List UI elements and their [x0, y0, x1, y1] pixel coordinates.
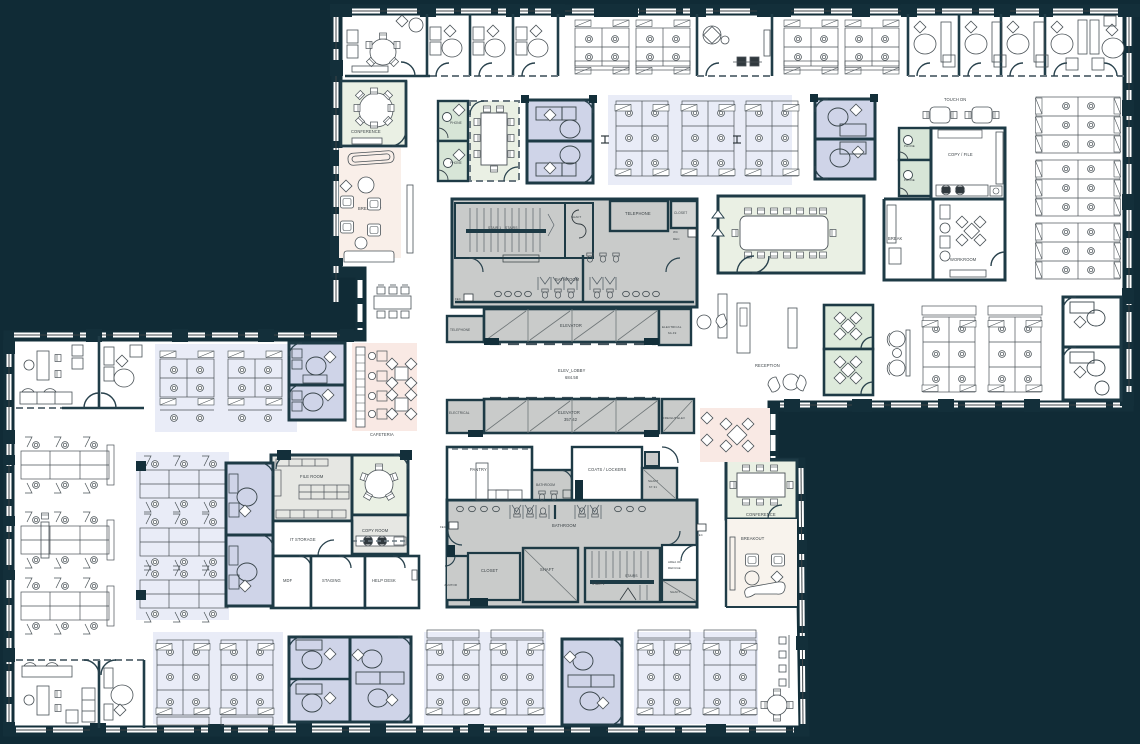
svg-text:ELEV_LOBBY: ELEV_LOBBY [558, 368, 586, 373]
svg-text:CONFERENCE: CONFERENCE [746, 512, 776, 517]
svg-text:HELP DESK: HELP DESK [372, 578, 396, 583]
svg-text:67.31: 67.31 [649, 485, 657, 489]
svg-text:BREAKOUT: BREAKOUT [741, 536, 765, 541]
svg-text:WORKROOM: WORKROOM [950, 257, 977, 262]
svg-text:CLOSET: CLOSET [674, 211, 687, 215]
svg-text:FEC: FEC [455, 297, 461, 301]
svg-text:CLOSET: CLOSET [481, 568, 498, 573]
svg-text:STAIRS: STAIRS [625, 574, 638, 578]
svg-text:BATHROOM: BATHROOM [536, 483, 555, 487]
svg-text:CONFERENCE: CONFERENCE [351, 129, 381, 134]
svg-text:IT STORAGE: IT STORAGE [290, 537, 316, 542]
svg-text:BATHROOM: BATHROOM [555, 277, 580, 282]
svg-text:PHONE: PHONE [450, 161, 462, 165]
svg-text:SHAFT: SHAFT [571, 215, 581, 219]
svg-text:REC: REC [673, 237, 680, 241]
svg-text:TOUCH DN: TOUCH DN [944, 97, 966, 102]
svg-text:FILE ROOM: FILE ROOM [300, 474, 324, 479]
svg-text:FEC: FEC [697, 533, 703, 537]
svg-text:SHAFT: SHAFT [670, 590, 680, 594]
svg-text:6A.49: 6A.49 [668, 331, 677, 335]
svg-text:BREAK: BREAK [888, 236, 903, 241]
svg-text:PANTRY: PANTRY [470, 467, 487, 472]
svg-text:COPY / FILE: COPY / FILE [948, 152, 973, 157]
svg-text:FREIGHT ELEV: FREIGHT ELEV [663, 416, 685, 420]
svg-text:RECEPTION: RECEPTION [755, 363, 780, 368]
svg-text:COPY ROOM: COPY ROOM [362, 528, 389, 533]
svg-text:MDF: MDF [283, 578, 293, 583]
svg-text:REFUGE: REFUGE [668, 566, 681, 570]
svg-text:ELECTRICAL: ELECTRICAL [662, 325, 682, 329]
svg-text:STAIR 1: STAIR 1 [488, 226, 501, 230]
svg-text:ELEVATOR: ELEVATOR [558, 410, 580, 415]
svg-text:ELEVATOR: ELEVATOR [560, 323, 582, 328]
svg-text:FEC: FEC [440, 525, 446, 529]
svg-text:PHONE: PHONE [450, 121, 462, 125]
svg-text:PHONE: PHONE [904, 178, 915, 182]
svg-text:BATHROOM: BATHROOM [552, 523, 577, 528]
svg-text:SHAFT: SHAFT [540, 567, 554, 572]
svg-text:STAIRS: STAIRS [505, 226, 518, 230]
svg-text:TELEPHONE: TELEPHONE [625, 211, 651, 216]
svg-text:WC: WC [673, 230, 679, 234]
svg-text:684.58: 684.58 [565, 375, 579, 380]
svg-text:SHAFT: SHAFT [648, 479, 658, 483]
svg-text:PHONE: PHONE [904, 144, 915, 148]
svg-text:JANITOR: JANITOR [444, 583, 457, 587]
svg-text:357.42: 357.42 [564, 417, 578, 422]
svg-text:TELEPHONE: TELEPHONE [450, 328, 470, 332]
svg-text:STAGING: STAGING [322, 578, 341, 583]
svg-text:ELECTRICAL: ELECTRICAL [449, 411, 470, 415]
svg-text:STAIR 1: STAIR 1 [592, 582, 605, 586]
svg-text:CAFETERIA: CAFETERIA [370, 432, 394, 437]
svg-text:COATS / LOCKERS: COATS / LOCKERS [588, 467, 626, 472]
svg-text:AREA OF: AREA OF [668, 560, 681, 564]
